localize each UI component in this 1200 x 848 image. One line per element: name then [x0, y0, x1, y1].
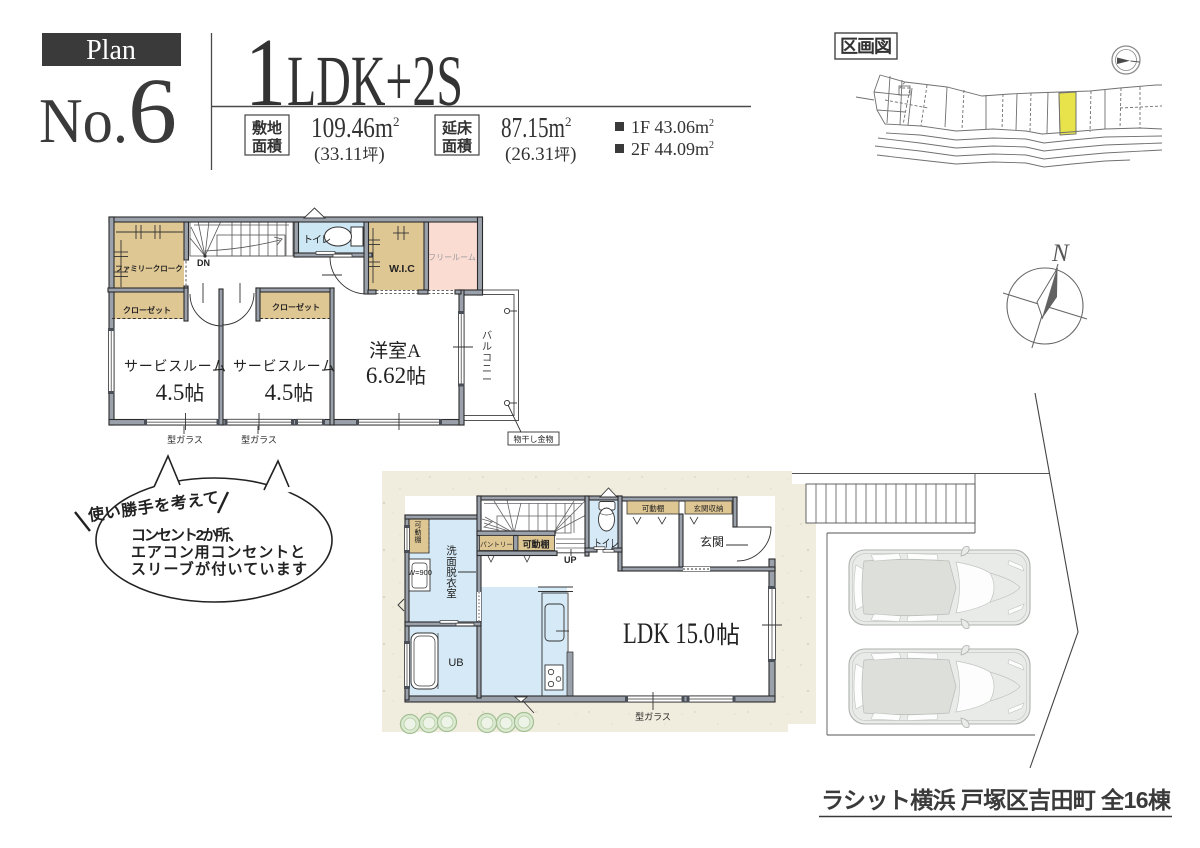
svg-text:W=900: W=900	[408, 568, 432, 577]
svg-text:1F 43.06m2: 1F 43.06m2	[631, 117, 714, 137]
svg-text:サービスルーム: サービスルーム	[233, 358, 335, 374]
svg-text:物干し金物: 物干し金物	[514, 434, 554, 444]
svg-text:フリールーム: フリールーム	[428, 253, 476, 262]
svg-text:4.5帖: 4.5帖	[156, 380, 205, 405]
svg-text:スリーブが付いています: スリーブが付いています	[131, 560, 307, 578]
svg-text:パントリー: パントリー	[480, 541, 513, 549]
svg-text:UB: UB	[448, 657, 463, 669]
svg-text:面積: 面積	[442, 137, 473, 155]
svg-text:109.46m2: 109.46m2	[311, 112, 400, 144]
svg-text:区画図: 区画図	[840, 37, 892, 57]
svg-text:可動棚: 可動棚	[642, 503, 665, 513]
svg-text:クローゼット: クローゼット	[272, 302, 320, 312]
svg-text:(26.31坪): (26.31坪)	[505, 144, 576, 165]
svg-text:ファミリークローク: ファミリークローク	[115, 263, 183, 273]
svg-text:UP: UP	[564, 555, 577, 565]
svg-text:可動棚: 可動棚	[415, 521, 422, 544]
svg-text:敷地: 敷地	[252, 119, 282, 137]
svg-text:延床: 延床	[441, 119, 473, 137]
svg-text:玄関収納: 玄関収納	[694, 503, 724, 513]
svg-text:サービスルーム: サービスルーム	[124, 358, 226, 374]
svg-text:1: 1	[245, 19, 286, 126]
svg-text:玄関: 玄関	[700, 534, 724, 549]
svg-text:4.5帖: 4.5帖	[265, 380, 314, 405]
svg-text:DN: DN	[197, 258, 210, 268]
svg-text:クローゼット: クローゼット	[123, 305, 171, 315]
svg-text:2F 44.09m2: 2F 44.09m2	[631, 139, 714, 159]
svg-text:型ガラス: 型ガラス	[241, 435, 277, 445]
svg-text:エアコン用コンセントと: エアコン用コンセントと	[131, 544, 305, 561]
svg-text:洋室A: 洋室A	[369, 340, 421, 362]
svg-text:6.62帖: 6.62帖	[366, 363, 426, 388]
svg-text:トイレ: トイレ	[303, 235, 331, 246]
svg-text:LDK 15.0帖: LDK 15.0帖	[623, 617, 740, 650]
svg-text:バルコニー: バルコニー	[482, 330, 492, 386]
svg-text:面積: 面積	[252, 137, 283, 155]
svg-text:87.15m2: 87.15m2	[501, 112, 572, 144]
svg-text:(33.11坪): (33.11坪)	[314, 144, 385, 165]
svg-text:ラシット横浜 戸塚区吉田町 全16棟: ラシット横浜 戸塚区吉田町 全16棟	[821, 787, 1172, 813]
svg-text:LDK+2S: LDK+2S	[287, 41, 463, 121]
svg-text:No.: No.	[39, 85, 128, 156]
svg-text:洗面脱衣室: 洗面脱衣室	[446, 545, 457, 600]
svg-text:6: 6	[128, 60, 177, 163]
svg-text:N: N	[1051, 240, 1070, 267]
svg-text:型ガラス: 型ガラス	[635, 712, 671, 722]
svg-text:型ガラス: 型ガラス	[167, 435, 203, 445]
svg-text:W.I.C: W.I.C	[389, 263, 415, 275]
svg-text:コンセント2か所、: コンセント2か所、	[131, 527, 243, 544]
svg-text:可動棚: 可動棚	[522, 539, 549, 550]
